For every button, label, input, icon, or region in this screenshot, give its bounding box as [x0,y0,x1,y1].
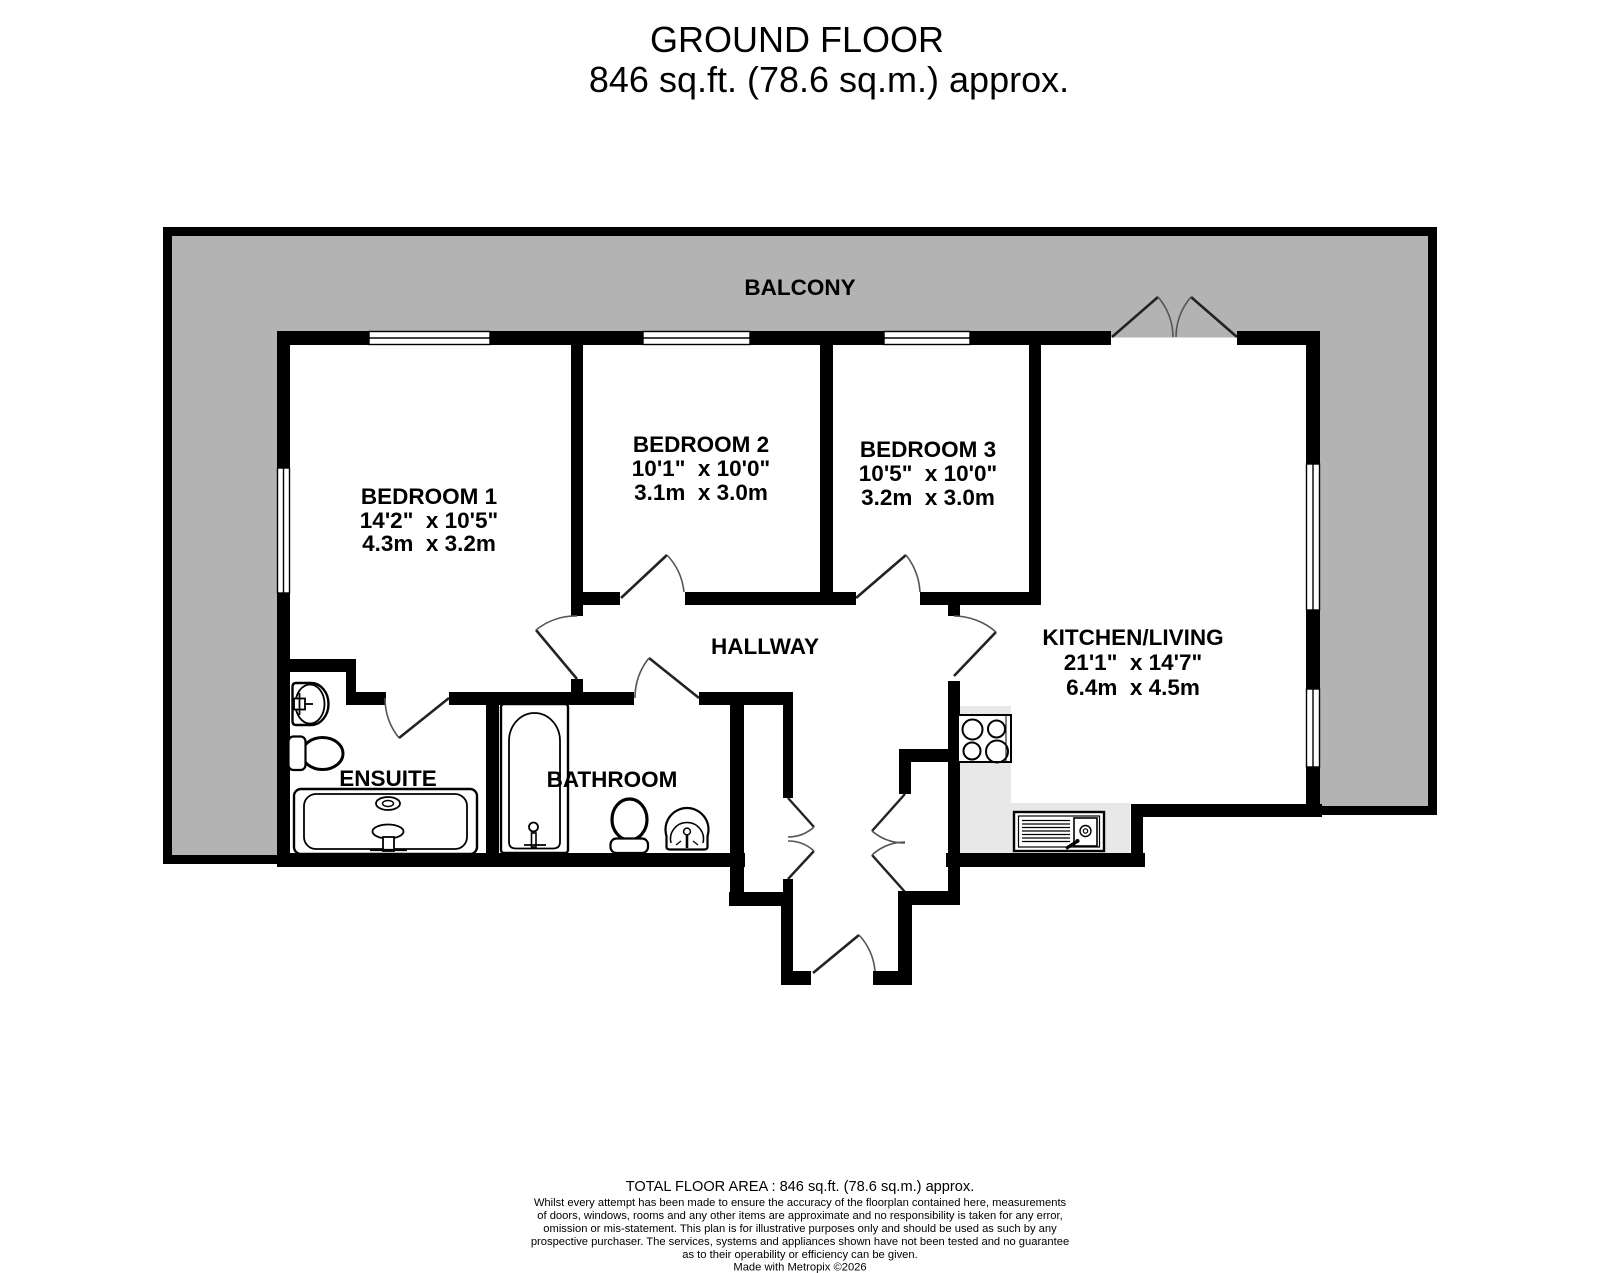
svg-text:Made with Metropix ©2026: Made with Metropix ©2026 [733,1262,866,1273]
svg-text:of doors, windows, rooms and a: of doors, windows, rooms and any other i… [537,1210,1062,1222]
svg-text:3.2m x 3.0m: 3.2m x 3.0m [861,485,995,510]
svg-text:HALLWAY: HALLWAY [711,634,819,659]
svg-text:10'1" x 10'0": 10'1" x 10'0" [632,456,770,481]
svg-text:GROUND FLOOR: GROUND FLOOR [650,19,944,60]
svg-text:BALCONY: BALCONY [744,275,855,300]
svg-text:4.3m x 3.2m: 4.3m x 3.2m [362,531,496,556]
svg-text:Whilst every attempt has been: Whilst every attempt has been made to en… [534,1197,1067,1209]
svg-text:BEDROOM 1: BEDROOM 1 [361,484,497,509]
svg-text:TOTAL FLOOR AREA : 846 sq.ft.: TOTAL FLOOR AREA : 846 sq.ft. (78.6 sq.m… [626,1179,975,1195]
svg-text:KITCHEN/LIVING: KITCHEN/LIVING [1042,625,1223,650]
svg-text:3.1m x 3.0m: 3.1m x 3.0m [634,480,768,505]
svg-text:BEDROOM 2: BEDROOM 2 [633,432,769,457]
svg-text:BEDROOM 3: BEDROOM 3 [860,437,996,462]
svg-text:6.4m x 4.5m: 6.4m x 4.5m [1066,675,1200,700]
svg-text:BATHROOM: BATHROOM [547,767,678,792]
svg-text:14'2" x 10'5": 14'2" x 10'5" [360,508,498,533]
svg-text:prospective purchaser. The ser: prospective purchaser. The services, sys… [531,1236,1069,1248]
svg-text:21'1" x 14'7": 21'1" x 14'7" [1064,650,1202,675]
svg-text:ENSUITE: ENSUITE [339,766,437,791]
svg-text:846 sq.ft. (78.6 sq.m.) approx: 846 sq.ft. (78.6 sq.m.) approx. [589,59,1069,100]
svg-text:10'5" x 10'0": 10'5" x 10'0" [859,461,997,486]
svg-text:as to their operability or eff: as to their operability or efficiency ca… [682,1249,917,1261]
svg-text:omission or mis-statement. Thi: omission or mis-statement. This plan is … [543,1223,1057,1235]
